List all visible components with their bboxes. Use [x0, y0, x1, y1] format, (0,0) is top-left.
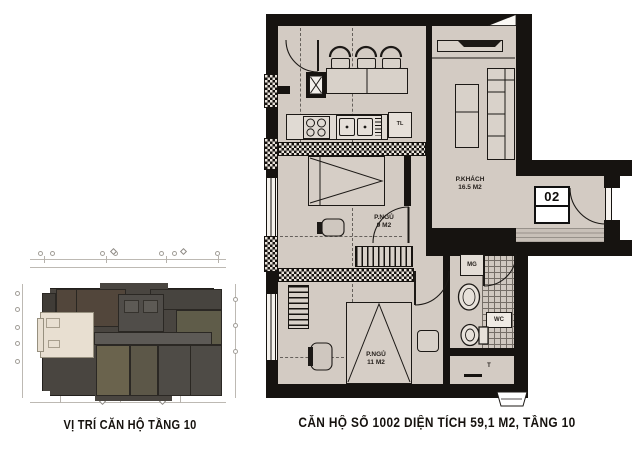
grid-bubble	[159, 251, 164, 256]
plan-graphic	[96, 345, 130, 396]
grid-bubble	[233, 297, 238, 302]
window	[266, 294, 277, 360]
sink-basin	[357, 118, 373, 136]
sink-basin	[339, 118, 355, 136]
entry-mat	[516, 228, 606, 242]
unit-number: 02	[536, 188, 568, 207]
overview-caption: VỊ TRÍ CĂN HỘ TẦNG 10	[28, 417, 232, 432]
bed	[346, 302, 412, 384]
plan-graphic: TL	[397, 122, 404, 128]
grid-bubble	[15, 341, 20, 346]
wall	[516, 160, 632, 176]
room-label-living: P.KHÁCH 16.5 M2	[438, 176, 502, 193]
plan-graphic	[130, 345, 158, 396]
plan-graphic	[190, 345, 191, 396]
hatched-wall	[264, 74, 278, 108]
grid-bubble	[100, 251, 105, 256]
plan-graphic	[42, 391, 50, 396]
bathroom-tiles	[482, 254, 514, 349]
grid-bubble	[15, 307, 20, 312]
washer-box: MG	[460, 254, 484, 276]
bar-stool-seat	[357, 58, 376, 69]
bar-stool-seat	[382, 58, 401, 69]
grid-bubble	[233, 323, 238, 328]
wall	[516, 14, 532, 176]
grid-bubble	[15, 359, 20, 364]
plan-graphic	[42, 293, 56, 313]
plan-graphic	[46, 318, 60, 328]
grid-bubble	[215, 251, 220, 256]
bar-stool-seat	[331, 58, 350, 69]
coffee-table	[455, 84, 479, 148]
wall	[266, 14, 532, 26]
plan-graphic	[106, 256, 107, 263]
dimension-line	[22, 284, 23, 398]
window	[266, 178, 277, 236]
wardrobe	[355, 246, 413, 267]
plan-graphic	[180, 396, 181, 403]
unit-badge-empty-cell	[536, 207, 568, 222]
wall	[278, 86, 290, 94]
tv-cabinet	[437, 40, 503, 52]
plan-graphic	[94, 332, 212, 345]
wall	[450, 348, 514, 356]
stove	[303, 116, 330, 139]
storage-shelf-mark	[464, 374, 482, 377]
grid-bubble	[50, 251, 55, 256]
wall	[426, 242, 632, 256]
hatched-wall	[264, 236, 278, 272]
dimension-line	[30, 259, 226, 260]
wall	[426, 228, 516, 242]
floor-plan-page: TL MG WC T 02 P.KHÁCH 16.5 M2 P.NGỦ 9 M2…	[0, 0, 640, 452]
nightstand	[417, 330, 439, 352]
overview-plan	[0, 0, 260, 175]
plan-graphic	[60, 396, 61, 403]
wall	[266, 384, 528, 398]
plan-graphic: P.KHÁCH	[438, 176, 502, 184]
plan-graphic: 11 M2	[354, 359, 398, 367]
plan-graphic: 9 M2	[362, 222, 406, 230]
sofa	[487, 68, 515, 160]
entry-door-leaf	[605, 187, 612, 221]
hatched-wall	[264, 138, 278, 170]
plan-graphic	[143, 300, 158, 313]
wall	[443, 254, 450, 384]
plan-graphic: P.NGỦ	[354, 351, 398, 359]
plan-graphic: MG	[467, 262, 477, 268]
wall	[404, 156, 411, 206]
plan-graphic: T	[487, 363, 491, 369]
section-marker-icon	[180, 248, 187, 255]
grid-bubble	[172, 251, 177, 256]
shelf	[288, 285, 309, 329]
plan-graphic	[280, 357, 344, 358]
hatched-wall	[278, 268, 414, 282]
grid-bubble	[15, 325, 20, 330]
wall	[426, 26, 432, 228]
grid-bubble	[15, 291, 20, 296]
plan-graphic: WC	[494, 317, 504, 323]
fridge-box: TL	[388, 112, 412, 138]
plan-graphic	[124, 300, 139, 313]
plan-graphic	[48, 340, 60, 348]
apartment-caption: CĂN HỘ SỐ 1002 DIỆN TÍCH 59,1 M2, TẦNG 1…	[279, 415, 596, 430]
grid-bubble	[38, 251, 43, 256]
grid-bubble	[233, 349, 238, 354]
dimension-line	[30, 267, 226, 268]
plan-graphic	[218, 256, 219, 263]
plan-graphic	[166, 256, 167, 263]
sink-drainer	[375, 118, 381, 136]
unit-badge: 02	[534, 186, 570, 224]
plan-graphic	[280, 236, 402, 237]
plan-graphic: 16.5 M2	[438, 184, 502, 192]
bar-counter	[326, 68, 408, 94]
room-label-bedroom1: P.NGỦ 9 M2	[362, 214, 406, 231]
wc-box: WC	[486, 312, 512, 328]
hatched-wall	[278, 142, 426, 156]
plan-graphic	[44, 256, 45, 263]
plan-graphic	[37, 318, 44, 352]
storage-label: T	[480, 360, 498, 371]
bed	[308, 156, 385, 206]
room-label-bedroom2: P.NGỦ 11 M2	[354, 351, 398, 368]
wall	[514, 242, 528, 384]
plan-graphic: P.NGỦ	[362, 214, 406, 222]
